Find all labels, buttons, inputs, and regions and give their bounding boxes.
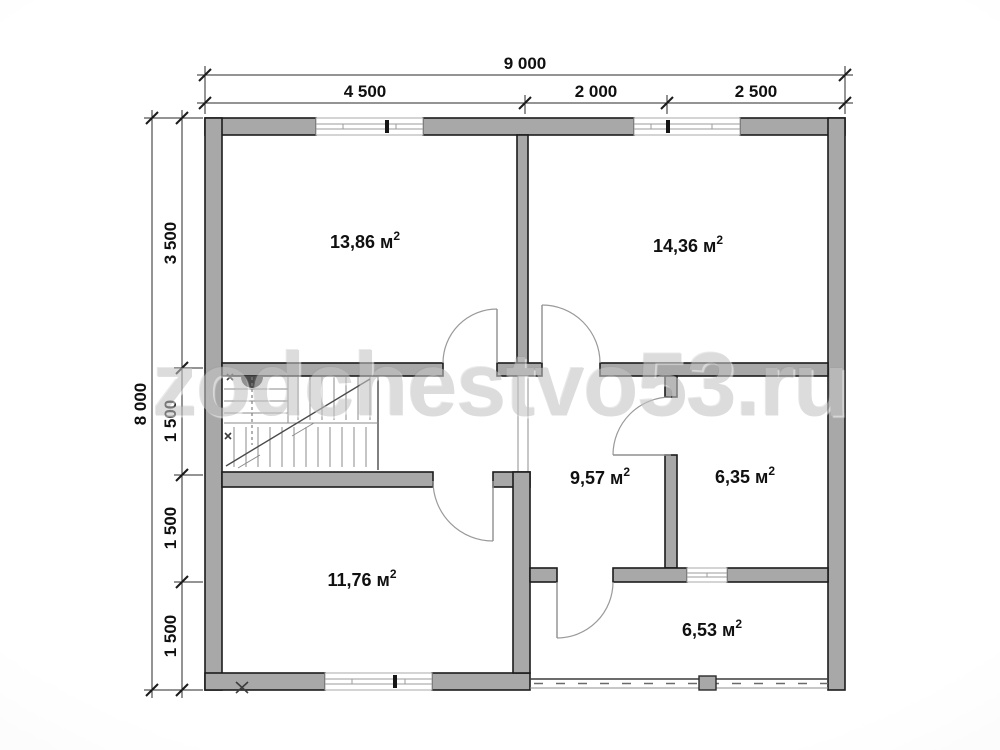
window <box>325 673 432 690</box>
dimension-left: 8 000 3 500 1 500 1 500 1 500 <box>131 110 203 698</box>
dim-label: 3 500 <box>161 222 180 265</box>
wall-segment <box>205 673 325 690</box>
room-area-sup: 2 <box>716 233 723 247</box>
room-area-sup: 2 <box>735 617 742 631</box>
wall-segment <box>613 568 687 582</box>
wall-segment <box>513 472 530 673</box>
room-area-sup: 2 <box>623 465 630 479</box>
room-area-label: 6,53 м2 <box>682 617 742 640</box>
wall-segment <box>222 472 433 487</box>
wall-segment <box>530 568 557 582</box>
interior-walls <box>222 135 828 673</box>
room-area-sup: 2 <box>390 567 397 581</box>
dim-label-total-width: 9 000 <box>504 54 547 73</box>
staircase <box>224 374 378 470</box>
door-swing <box>557 582 613 638</box>
stair-partition <box>518 376 528 472</box>
room-area-sup: 2 <box>768 464 775 478</box>
dim-label: 1 500 <box>161 507 180 550</box>
floor-plan-canvas: 9 000 4 500 2 000 2 500 8 000 3 500 1 50… <box>0 0 1000 750</box>
room-area-value: 13,86 м <box>330 232 393 252</box>
dim-label: 4 500 <box>344 82 387 101</box>
room-area-value: 6,53 м <box>682 620 735 640</box>
dim-label: 1 500 <box>161 400 180 443</box>
wall-segment <box>432 673 530 690</box>
door-swing <box>542 305 600 363</box>
room-area-sup: 2 <box>393 229 400 243</box>
room-area-value: 9,57 м <box>570 468 623 488</box>
room-area-label: 13,86 м2 <box>330 229 400 252</box>
wall-segment-left <box>205 118 222 690</box>
room-area-value: 14,36 м <box>653 236 716 256</box>
wall-segment <box>423 118 634 135</box>
wall-segment <box>600 363 828 376</box>
wall-segment <box>665 455 677 568</box>
porch-post <box>699 676 716 690</box>
doors <box>433 305 671 638</box>
room-area-label: 9,57 м2 <box>570 465 630 488</box>
door-swing <box>443 309 497 363</box>
dim-label: 1 500 <box>161 615 180 658</box>
door-swing <box>433 481 493 541</box>
room-area-label: 6,35 м2 <box>715 464 775 487</box>
wall-segment-right <box>828 118 845 690</box>
room-area-label: 11,76 м2 <box>327 567 396 590</box>
wall-segment <box>497 363 542 376</box>
wall-segment <box>727 568 828 582</box>
dim-label: 2 000 <box>575 82 618 101</box>
stair-break-dash <box>292 423 314 436</box>
room-area-label: 14,36 м2 <box>653 233 723 256</box>
room-area-value: 11,76 м <box>327 570 389 590</box>
floor-plan-drawing: 9 000 4 500 2 000 2 500 8 000 3 500 1 50… <box>0 0 1000 750</box>
dimension-top: 9 000 4 500 2 000 2 500 <box>197 54 853 114</box>
wall-segment <box>517 135 528 363</box>
wall-segment <box>665 376 677 397</box>
dim-label-total-height: 8 000 <box>131 383 150 426</box>
window <box>687 568 727 582</box>
room-area-value: 6,35 м <box>715 467 768 487</box>
stair-mark <box>225 433 231 439</box>
wall-segment <box>222 363 443 376</box>
dim-label: 2 500 <box>735 82 778 101</box>
porch-wall <box>530 676 828 690</box>
door-swing <box>613 397 671 455</box>
window <box>316 118 423 135</box>
window <box>634 118 740 135</box>
